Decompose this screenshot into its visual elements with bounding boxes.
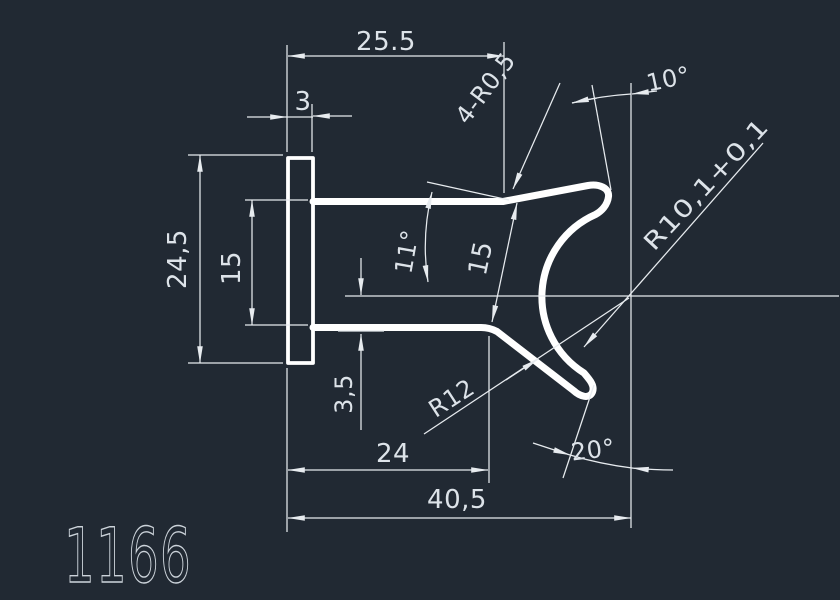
cad-viewport: 25.5 3 24,5 15 15 11° 4-R0,5 10° R10,1+0…: [0, 0, 840, 600]
dim-flange-thickness-label: 3: [294, 87, 311, 117]
dim-arc-20deg-right-arrow: [632, 468, 673, 470]
dim-bottom-tip-angle-label: 20°: [569, 433, 616, 466]
dim-top-tip-angle-label: 10°: [644, 61, 693, 98]
radius-arrow-r12: [506, 359, 538, 380]
dim-lower-arm-length-label: 24: [376, 439, 410, 469]
angle-ray-10deg: [592, 85, 611, 190]
radius-leader-r10-1: [584, 143, 763, 347]
technical-drawing: 25.5 3 24,5 15 15 11° 4-R0,5 10° R10,1+0…: [0, 0, 840, 600]
leader-4-r0-5: [513, 83, 560, 189]
dim-centerline-offset-label: 3,5: [330, 374, 358, 414]
dim-inner-radius-label: R10,1+0,1: [638, 113, 774, 256]
drawing-number: 1166: [64, 511, 192, 600]
dim-arm-spacing-label: 15: [217, 251, 247, 285]
dim-top-width-label: 25.5: [356, 27, 416, 57]
dimension-lines: [200, 56, 763, 518]
dim-jaw-spacing-label: 15: [463, 239, 499, 279]
profile-outline: [288, 158, 609, 396]
angle-ref-11deg: [427, 182, 509, 200]
dimension-labels: 25.5 3 24,5 15 15 11° 4-R0,5 10° R10,1+0…: [163, 27, 774, 515]
dim-line-15-mid: [492, 203, 517, 322]
clip-body-path: [313, 185, 609, 396]
flange-rectangle: [288, 158, 313, 363]
dim-arc-20deg-left-arrow: [533, 443, 570, 455]
dim-flange-height-label: 24,5: [163, 229, 193, 289]
dim-arc-11deg: [425, 192, 432, 282]
dim-overall-width-label: 40,5: [427, 485, 487, 515]
dim-fillet-radii-label: 4-R0,5: [450, 47, 522, 129]
dim-arm-angle-label: 11°: [390, 227, 425, 275]
